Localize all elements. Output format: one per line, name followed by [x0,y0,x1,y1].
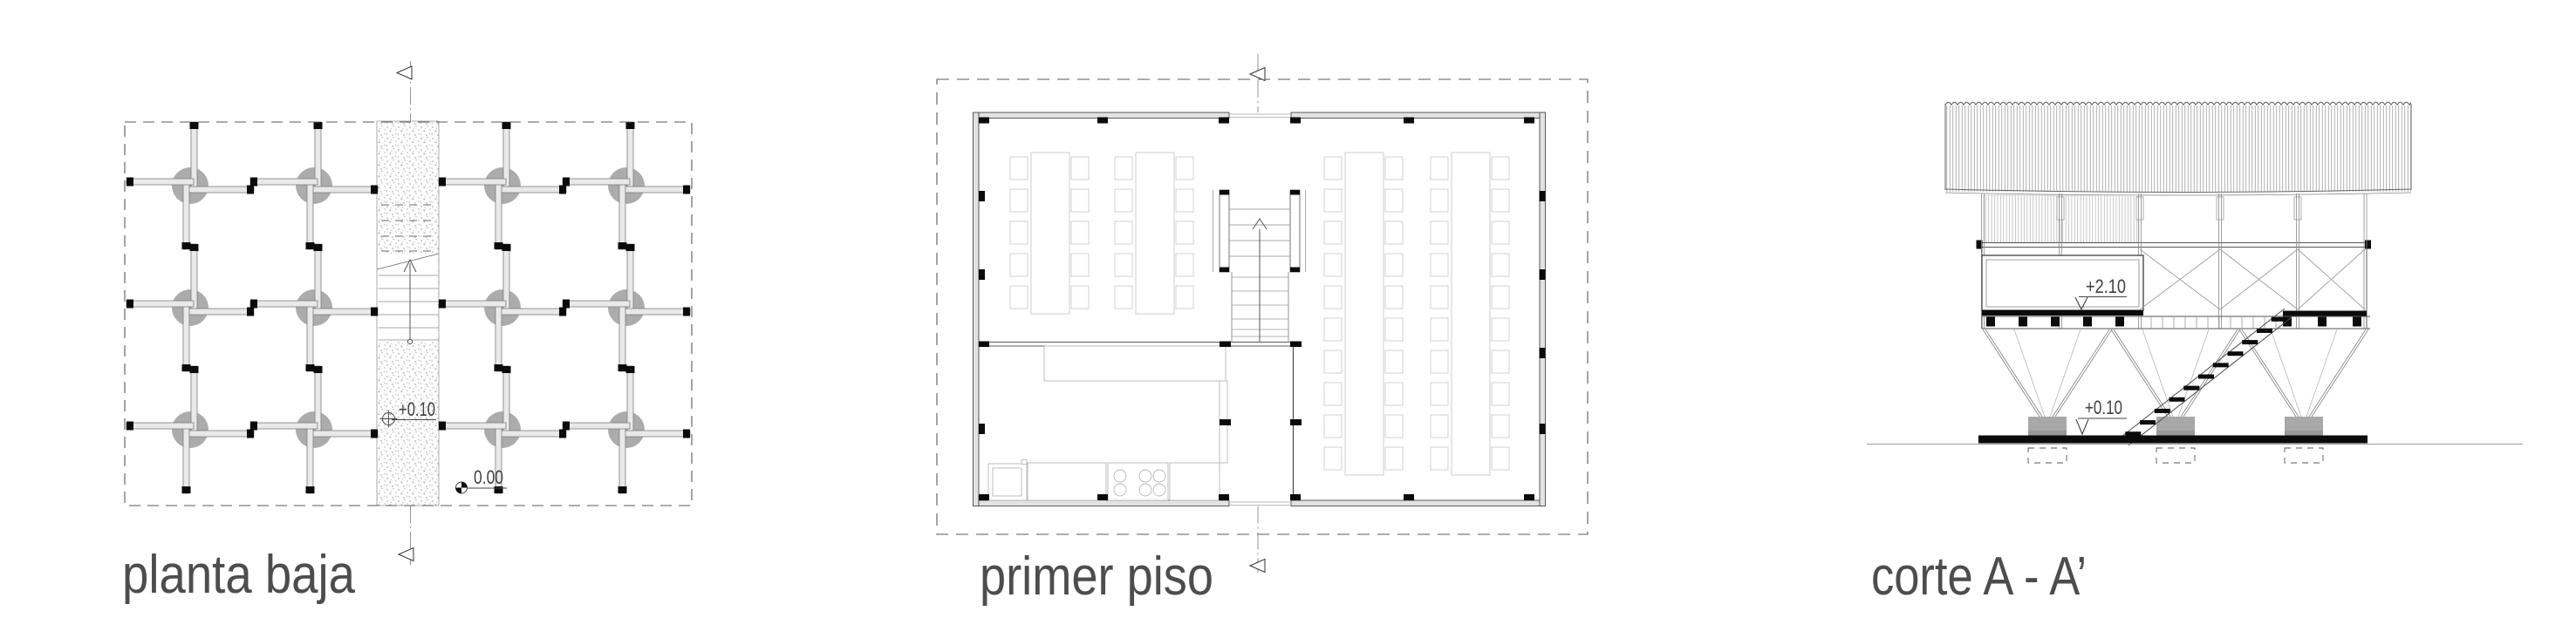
foundations [2028,448,2323,463]
chair [1324,254,1342,276]
chair [1324,447,1342,470]
chair [1176,157,1193,180]
chair [1431,447,1448,470]
dining-tables [1031,153,1490,475]
chair [1431,189,1448,212]
chair [1071,221,1089,244]
chair [1071,254,1089,276]
chair [1492,447,1509,470]
chair [1115,254,1132,276]
chair [1431,221,1448,244]
figure-primer-piso: primer piso [937,54,1588,607]
chair [1431,415,1448,438]
stilt-trusses [1983,329,2368,436]
level-text-platform: +0.10 [399,398,435,420]
chair [1385,383,1403,405]
chair [1385,286,1403,309]
footing [2028,417,2067,431]
external-stair [2122,309,2292,445]
figure-corte: +2.10 +0.10 corte A - A’ [1867,101,2523,607]
chair [1324,318,1342,341]
chair [1010,221,1028,244]
chair [1324,157,1342,180]
chair [1324,415,1342,438]
chair [1431,350,1448,373]
chair [1385,415,1403,438]
section-cut-marker-bottom-icon [399,506,413,565]
chair [1176,286,1193,309]
architectural-sheet: +0.10 0.00 planta baja [0,0,2576,618]
kitchen [988,346,1227,500]
chair [1115,157,1132,180]
chair [1010,254,1028,276]
chair [1492,415,1509,438]
chair [1492,254,1509,276]
chair [1431,254,1448,276]
chair [1010,157,1028,180]
section-cut-marker-top-icon [1250,54,1265,112]
chair [1176,254,1193,276]
chair [1431,383,1448,405]
footing [2285,417,2323,431]
section-cut-marker-top-icon [397,61,412,121]
figure-label-corte: corte A - A’ [1871,547,2087,607]
level-text-ground: +0.10 [2085,397,2122,418]
stair [1213,190,1306,343]
level-text-floor: +2.10 [2086,275,2126,297]
chair [1010,286,1028,309]
figure-label-primer-piso: primer piso [980,547,1213,607]
corrugated-roof [1945,101,2411,195]
level-marker-icon [2076,419,2088,434]
ground [1867,436,2523,464]
chair [1071,157,1089,180]
chair [1324,383,1342,405]
chair [1492,350,1509,373]
chair [1324,189,1342,212]
chair [1115,221,1132,244]
chair [1071,286,1089,309]
chair [1010,189,1028,212]
chair [1115,189,1132,212]
level-text-ground: 0.00 [474,466,503,488]
chair [1492,157,1509,180]
floor-deck [1982,310,2370,329]
datum-target-icon [456,482,468,493]
chair [1431,286,1448,309]
chair [1176,221,1193,244]
chair [1385,157,1403,180]
chair [1385,189,1403,212]
chair [1324,221,1342,244]
chair [1492,221,1509,244]
chair [1385,350,1403,373]
stair-up-arrow-icon [1253,219,1267,342]
chair [1492,383,1509,405]
chair [1176,189,1193,212]
chair [1431,157,1448,180]
level-annotation-ground: +0.10 [2076,397,2127,434]
stair-core-strip [377,121,439,506]
chair [1431,318,1448,341]
section-cut-marker-bottom-icon [1250,506,1265,574]
chair [1071,189,1089,212]
figure-planta-baja: +0.10 0.00 planta baja [122,61,692,605]
chair [1492,189,1509,212]
chair [1385,254,1403,276]
chair [1385,221,1403,244]
chair [1492,318,1509,341]
stair-opening [378,255,438,343]
chair [1324,350,1342,373]
chair [1492,286,1509,309]
chair [1324,286,1342,309]
chair [1385,318,1403,341]
x-bracing [2140,249,2365,309]
figure-label-planta-baja: planta baja [122,545,355,605]
chair [1385,447,1403,470]
chair [1115,286,1132,309]
clerestory [1977,195,2372,249]
